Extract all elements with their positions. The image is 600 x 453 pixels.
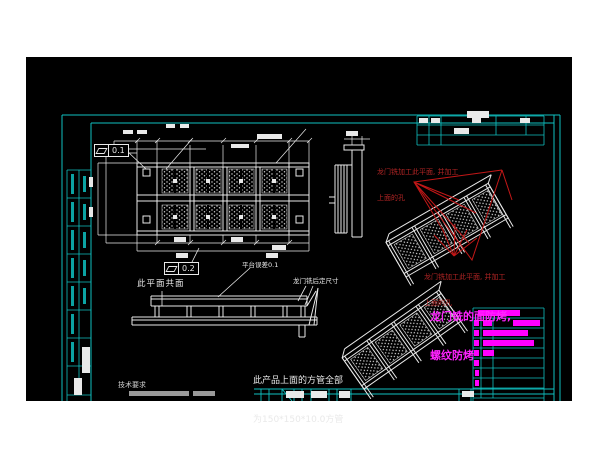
- flatness-icon: [95, 145, 109, 156]
- flatness-icon: [165, 263, 179, 274]
- iso-view-2: [339, 281, 474, 399]
- cad-drawing-viewport[interactable]: 0.1 0.2 此平面共面 平台误差0.1 龙门铣后定尺寸 龙门铣加工此平面, …: [26, 57, 572, 401]
- elevation-view: [132, 268, 318, 337]
- flatness-value: 0.1: [109, 146, 128, 155]
- flatness-tolerance-frame-top: 0.1: [94, 144, 129, 157]
- flatness-value: 0.2: [179, 264, 198, 273]
- drawing-linework: [26, 57, 572, 401]
- dimension-text-blobs: [74, 111, 530, 398]
- tech-req-body-blobs: [129, 391, 215, 396]
- parts-header-bar: [478, 310, 520, 316]
- side-view: [329, 136, 370, 237]
- screenshot-root: { "window": { "background": "#ffffff", "…: [0, 0, 600, 450]
- tube-note-line2: 为150*150*10.0方管: [253, 414, 343, 427]
- plan-view: [98, 129, 312, 306]
- iso-view-1: [383, 175, 519, 286]
- flatness-tolerance-frame-bottom: 0.2: [164, 262, 199, 275]
- margin-text-blobs: [71, 174, 86, 362]
